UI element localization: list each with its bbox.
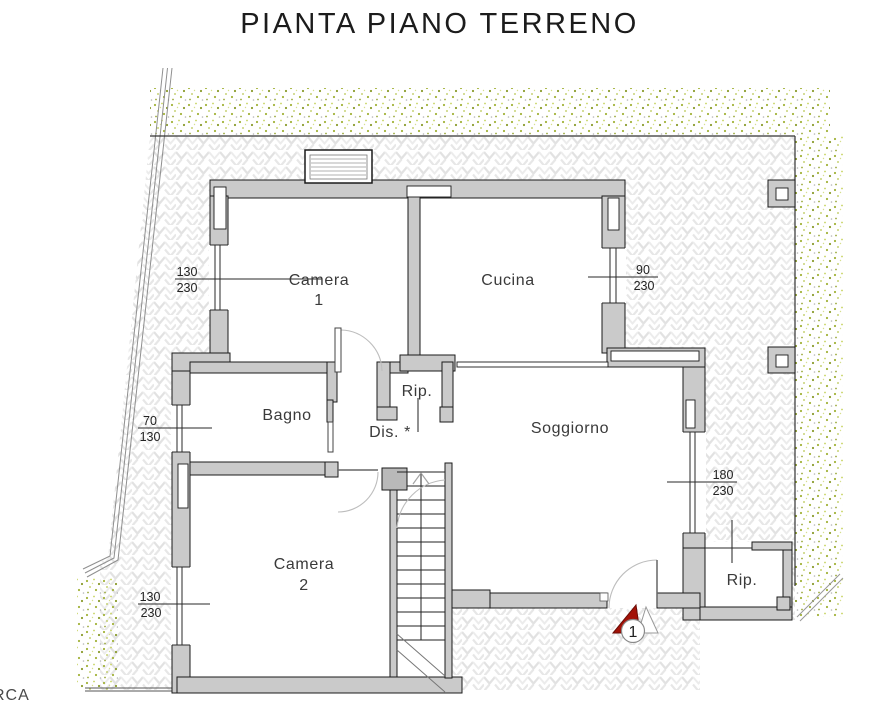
wall-segment (752, 542, 792, 550)
room-label-camera1: Camera (289, 272, 350, 289)
door-jamb (325, 462, 338, 477)
svg-text:130: 130 (177, 265, 198, 279)
svg-text:130: 130 (140, 430, 161, 444)
wall-segment (177, 677, 462, 693)
room-label-camera2-number: 2 (299, 577, 309, 594)
pillar (777, 597, 790, 610)
room-label-soggiorno: Soggiorno (531, 420, 609, 437)
room-label-camera2: Camera (274, 556, 335, 573)
wall-segment (377, 407, 397, 420)
floor-plan-page: PIANTA PIANO TERRENO RCA (0, 0, 879, 703)
window-camera2 (171, 567, 191, 645)
stair-wall (445, 463, 452, 678)
wall-segment (190, 462, 338, 475)
wall-segment (408, 196, 420, 355)
wall-segment (440, 407, 453, 422)
room-label-cucina: Cucina (481, 272, 534, 289)
chimney-grate (305, 150, 372, 183)
entrance-number: 1 (629, 624, 638, 641)
svg-text:230: 230 (141, 606, 162, 620)
wall-segment (172, 371, 190, 405)
room-label-bagno: Bagno (262, 407, 311, 424)
wall-segment (327, 400, 333, 422)
stair-newel-block (382, 468, 407, 490)
room-label-rip-nord: Rip. (402, 383, 433, 400)
svg-text:230: 230 (634, 279, 655, 293)
svg-text:90: 90 (636, 263, 650, 277)
floor-plan-svg: 130 230 90 230 70 130 180 230 130 23 (0, 0, 879, 703)
passage-lintel (457, 362, 608, 367)
svg-text:70: 70 (143, 414, 157, 428)
svg-text:230: 230 (713, 484, 734, 498)
wall-segment (657, 593, 700, 608)
pillar-core (776, 188, 788, 200)
window-cucina (601, 248, 626, 303)
wall-segment (210, 310, 228, 355)
svg-text:180: 180 (713, 468, 734, 482)
wall-segment (190, 362, 337, 373)
svg-text:130: 130 (140, 590, 161, 604)
stair-wall (390, 490, 397, 677)
pillar-core (776, 355, 788, 367)
room-label-rip-sud: Rip. (727, 572, 758, 589)
wall-segment (602, 303, 625, 353)
room-label-disimpegno: Dis. * (369, 424, 411, 441)
room-label-camera1-number: 1 (314, 292, 324, 309)
door-bagno (328, 422, 333, 452)
window-camera1 (209, 245, 229, 310)
svg-text:230: 230 (177, 281, 198, 295)
wall-segment (683, 533, 705, 549)
